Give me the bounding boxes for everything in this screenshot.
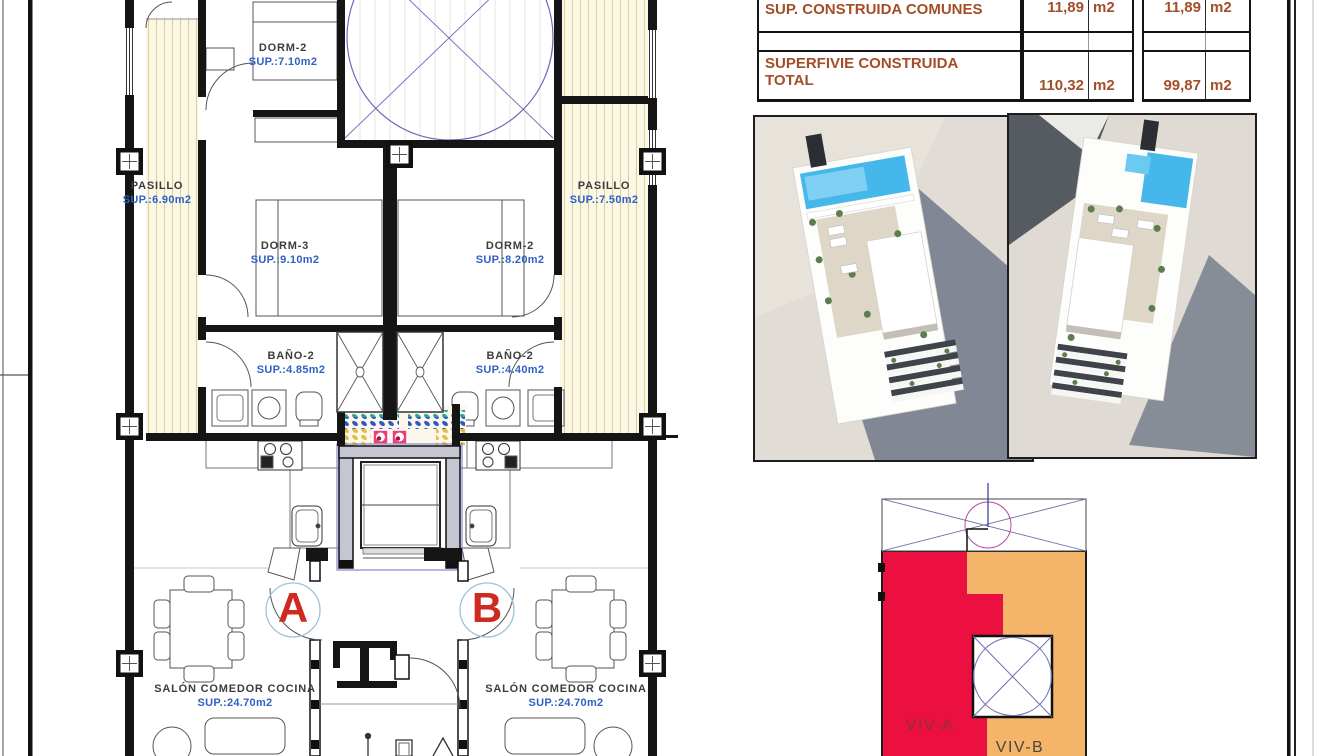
unit-a-letter: A — [278, 584, 308, 632]
unit-b-letter: B — [472, 584, 502, 632]
viv-a-label: VIV-A — [906, 717, 954, 735]
drawing-sheet: SUP. CONSTRUIDA COMUNES SUPERFIVIE CONST… — [0, 0, 1319, 756]
table-label-comunes: SUP. CONSTRUIDA COMUNES — [759, 0, 987, 31]
render-building-right — [1007, 113, 1257, 459]
viv-patio — [973, 636, 1052, 717]
room-label-dorm2-top: DORM-2 SUP.:7.10m2 — [249, 42, 318, 68]
summary-table-values-2: 11,89 m2 99,87 m2 — [1142, 0, 1251, 102]
viv-b-label: VIV-B — [996, 739, 1044, 756]
room-label-dorm2-right: DORM-2 SUP.:8.20m2 — [476, 240, 545, 266]
room-label-bano-left: BAÑO-2 SUP.:4.85m2 — [257, 350, 326, 376]
value-total-1: 110,32 — [1024, 52, 1088, 99]
room-label-pasillo-right: PASILLO SUP.:7.50m2 — [570, 180, 639, 206]
table-label-total: SUPERFIVIE CONSTRUIDA TOTAL — [759, 52, 962, 99]
gallery-hatch-right — [560, 0, 648, 433]
sheet-border-left — [28, 0, 33, 756]
unit-total-1: m2 — [1088, 52, 1132, 99]
gallery-hatch-left — [146, 18, 198, 433]
value-comunes-2: 11,89 — [1144, 0, 1205, 31]
summary-table-values-1: 11,89 m2 110,32 m2 — [1022, 0, 1134, 102]
unit-total-2: m2 — [1205, 52, 1249, 99]
courtyard — [345, 0, 553, 140]
render-building-left — [753, 115, 1034, 462]
sheet-border-right — [1287, 0, 1291, 756]
unit-comunes-1: m2 — [1088, 0, 1132, 31]
value-comunes-1: 11,89 — [1024, 0, 1088, 31]
room-label-salon-right: SALÓN COMEDOR COCINA SUP.:24.70m2 — [485, 683, 646, 709]
room-label-bano-right: BAÑO-2 SUP.:4.40m2 — [476, 350, 545, 376]
viv-diagram — [878, 483, 1086, 756]
room-label-salon-left: SALÓN COMEDOR COCINA SUP.:24.70m2 — [154, 683, 315, 709]
room-label-pasillo-left: PASILLO SUP.:6.90m2 — [123, 180, 192, 206]
stairs — [366, 734, 454, 756]
value-total-2: 99,87 — [1144, 52, 1205, 99]
room-label-dorm3: DORM-3 SUP.:9.10m2 — [251, 240, 320, 266]
unit-comunes-2: m2 — [1205, 0, 1249, 31]
viv-courtyard — [882, 483, 1086, 551]
summary-table-labels: SUP. CONSTRUIDA COMUNES SUPERFIVIE CONST… — [757, 0, 1022, 102]
